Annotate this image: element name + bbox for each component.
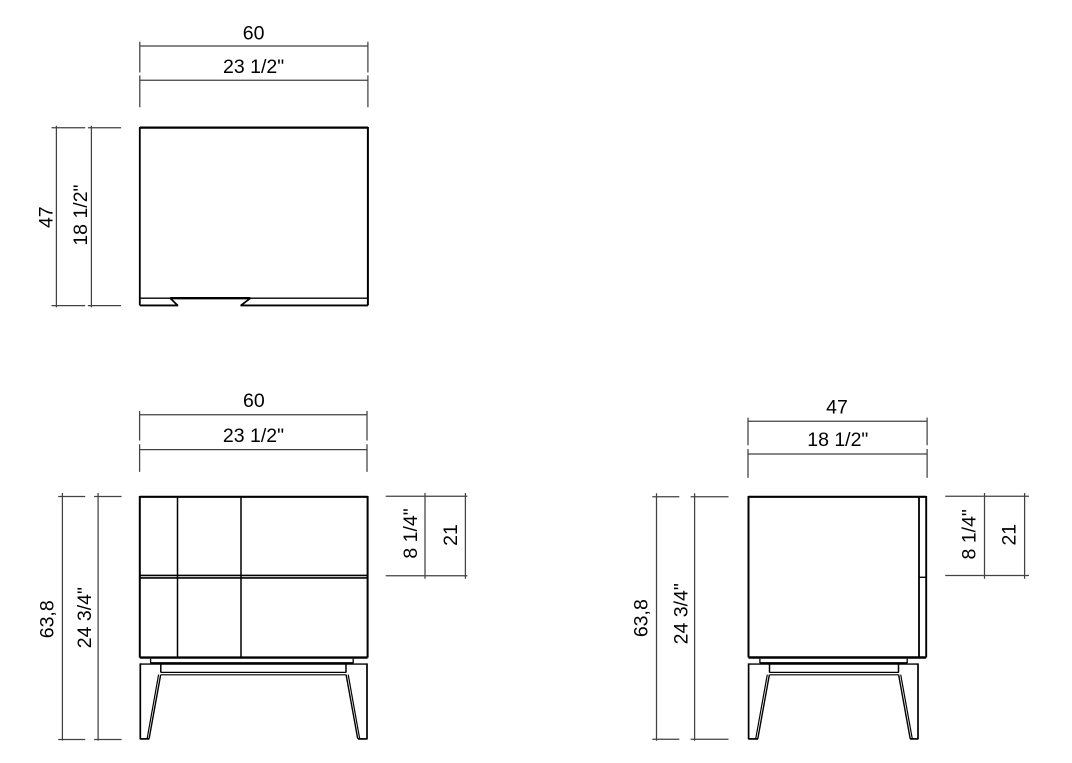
svg-text:18 1/2": 18 1/2" [807, 429, 868, 451]
svg-text:21: 21 [999, 524, 1021, 546]
svg-text:47: 47 [826, 396, 848, 418]
svg-text:24 3/4": 24 3/4" [671, 583, 693, 644]
svg-text:23 1/2": 23 1/2" [223, 56, 284, 78]
svg-text:47: 47 [36, 206, 58, 228]
svg-text:18 1/2": 18 1/2" [70, 184, 92, 245]
svg-text:8 1/4": 8 1/4" [959, 509, 981, 559]
svg-text:63,8: 63,8 [37, 600, 59, 638]
svg-text:21: 21 [440, 524, 462, 546]
svg-text:23 1/2": 23 1/2" [223, 425, 284, 447]
svg-text:60: 60 [243, 390, 265, 412]
svg-text:63,8: 63,8 [631, 599, 653, 637]
svg-text:24 3/4": 24 3/4" [74, 587, 96, 648]
svg-text:60: 60 [243, 22, 265, 44]
svg-text:8 1/4": 8 1/4" [400, 508, 422, 558]
